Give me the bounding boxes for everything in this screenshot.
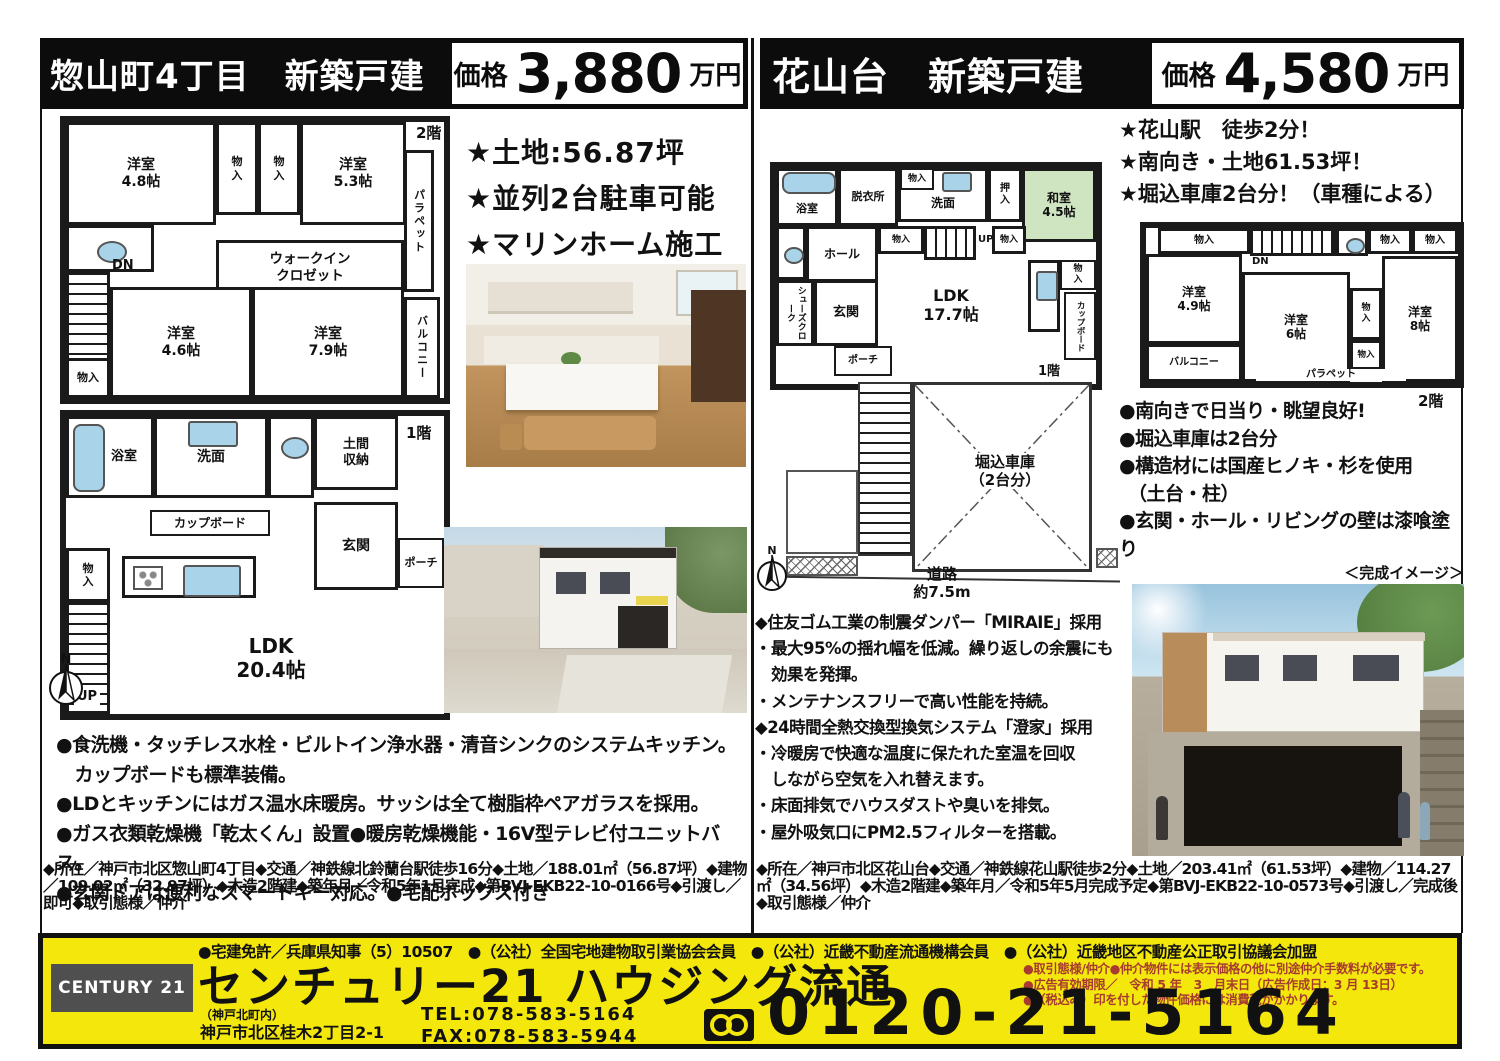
- room-label: 物 入: [1350, 288, 1382, 340]
- diamond-item: ◆24時間全熱交換型換気システム「澄家」採用: [755, 715, 1135, 741]
- garage-opening: [1184, 746, 1402, 846]
- floor-label-2f: 2階: [416, 124, 441, 142]
- panel-divider: [751, 38, 754, 933]
- left-floorplan-1f: 浴室 洗面 土間 収納 1階 カップボード 玄関 ポーチ 物 入 UP LDK …: [60, 410, 450, 720]
- site-hatch: [786, 556, 858, 576]
- room-label: LDK 20.4帖: [206, 634, 336, 682]
- room-label: 玄関: [814, 280, 878, 346]
- room-label: 玄関: [314, 502, 398, 590]
- room-label: ポーチ: [398, 538, 444, 588]
- house-window: [600, 572, 630, 594]
- left-feature-3: ★マリンホーム施工: [466, 222, 751, 268]
- left-price-value: 3,880: [516, 47, 682, 101]
- right-bullets: ●南向きで日当り・眺望良好! ●堀込車庫は2台分 ●構造材には国産ヒノキ・杉を使…: [1119, 398, 1464, 563]
- sink-icon: [1036, 271, 1058, 301]
- driveway: [557, 655, 732, 713]
- house-window: [556, 572, 586, 594]
- footer: ●宅建免許／兵庫県知事（5）10507 ●（公社）全国宅地建物取引業協会会員 ●…: [38, 933, 1462, 1049]
- room-label: 洋室 6帖: [1242, 272, 1350, 382]
- road-label: 道路 約7.5m: [882, 565, 1002, 601]
- room-label: 物 入: [1060, 260, 1096, 290]
- room-label: 洋室 5.3帖: [300, 122, 406, 225]
- room-label: 洋室 7.9帖: [252, 287, 404, 398]
- right-price-value: 4,580: [1224, 47, 1390, 101]
- house-window: [1283, 655, 1317, 681]
- left-property-title: 惣山町4丁目 新築戸建: [40, 38, 447, 109]
- garage-label: 堀込車庫 （2台分）: [965, 453, 1045, 489]
- left-floorplan-2f: 洋室 4.8帖 物 入 物 入 洋室 5.3帖 パラペット 2階 ウォークイン …: [60, 116, 450, 404]
- left-price-unit: 万円: [689, 55, 741, 92]
- flyer-page: 惣山町4丁目 新築戸建 価格 3,880 万円 洋室 4.8帖 物 入 物 入 …: [0, 0, 1500, 1061]
- dining-chair: [500, 424, 522, 450]
- parapet-label: パラペット: [1256, 369, 1406, 381]
- stairs-down-label: DN: [1252, 256, 1269, 268]
- balcony-rail: [1213, 633, 1425, 641]
- left-panel-edge: [40, 109, 42, 933]
- company-address: 神戸市北区桂木2丁目2-1: [200, 1023, 384, 1042]
- wood-cladding: [1163, 633, 1207, 733]
- room-label: LDK 17.7帖: [896, 286, 1006, 324]
- render-image-label: ＜完成イメージ＞: [1260, 564, 1464, 582]
- site-pad: [786, 470, 858, 554]
- diamond-item: ・最大95%の揺れ幅を低減。繰り返しの余震にも: [755, 636, 1135, 662]
- room-label: 物入: [66, 358, 110, 398]
- bullet-item: ●構造材には国産ヒノキ・杉を使用: [1119, 453, 1464, 481]
- room-label: シューズクローク: [776, 280, 814, 346]
- toilet-icon: [1346, 238, 1365, 254]
- person-silhouette: [1420, 802, 1430, 840]
- right-price-unit: 万円: [1397, 55, 1449, 92]
- right-features: ★花山駅 徒歩2分！ ★南向き・土地61.53坪！ ★堀込車庫2台分！（車種によ…: [1119, 114, 1464, 210]
- garage-site-plan: 堀込車庫 （2台分） 道路 約7.5m: [762, 378, 1120, 610]
- toilet-icon: [784, 247, 804, 264]
- room-label: バルコニー: [404, 297, 440, 398]
- house-window: [1353, 655, 1399, 681]
- room-label: バルコニー: [1146, 344, 1242, 382]
- left-property-details: ◆所在／神戸市北区惣山町4丁目◆交通／神鉄線北鈴蘭台駅徒歩16分◆土地／188.…: [43, 861, 749, 912]
- person-silhouette: [1398, 792, 1410, 838]
- stairs: [924, 226, 976, 260]
- bathtub-icon: [782, 172, 836, 194]
- room-label: ポーチ: [834, 346, 892, 376]
- sink-icon: [183, 565, 241, 597]
- compass-icon: N: [752, 542, 792, 598]
- stairs-down-label: DN: [112, 258, 134, 274]
- exterior-photo: [444, 527, 747, 713]
- tel-number: TEL:078-583-5164: [421, 1004, 636, 1026]
- room-label: ホール: [806, 226, 878, 282]
- kitchen-counter-plan: [122, 556, 256, 598]
- room-label: 物入: [1412, 228, 1458, 254]
- diamond-item: ◆住友ゴム工業の制震ダンパー「MIRAIE」採用: [755, 610, 1135, 636]
- sink-icon: [188, 421, 238, 447]
- diamond-item: ・屋外吸気口にPM2.5フィルターを搭載。: [755, 820, 1135, 846]
- banner: [636, 596, 668, 605]
- room-label: 物 入: [66, 548, 110, 602]
- room-label: 洋室 4.6帖: [110, 287, 252, 398]
- garage-stairs: [858, 382, 912, 556]
- kitchen-plan: [1028, 260, 1060, 332]
- bathtub-icon: [73, 424, 105, 492]
- toilet-room: [268, 416, 314, 498]
- kitchen-photo: [466, 264, 746, 467]
- century21-logo: CENTURY 21: [51, 964, 193, 1012]
- room-label: 押 入: [988, 168, 1022, 222]
- right-feature-2: ★南向き・土地61.53坪！: [1119, 146, 1464, 178]
- right-diamond-bullets: ◆住友ゴム工業の制震ダンパー「MIRAIE」採用 ・最大95%の揺れ幅を低減。繰…: [755, 610, 1135, 846]
- freedial-number: 0120-21-5164: [767, 982, 1346, 1044]
- right-floorplan-1f: 浴室 脱衣所 洗面 物入 押 入 和室 4.5帖 ホール 物入 UP 物入 シュ…: [770, 162, 1102, 390]
- right-property-details: ◆所在／神戸市北区花山台◆交通／神鉄線花山駅徒歩2分◆土地／203.41㎡（61…: [756, 861, 1464, 912]
- left-feature-1: ★土地:56.87坪: [466, 130, 751, 176]
- room-label: 洋室 4.9帖: [1146, 254, 1242, 344]
- bullet-item: ●南向きで日当り・眺望良好!: [1119, 398, 1464, 426]
- diamond-item: 効果を発揮。: [755, 662, 1135, 688]
- room-label: 物 入: [216, 122, 258, 215]
- dining-table: [524, 416, 656, 450]
- toilet-room: [776, 226, 806, 280]
- garage-outline: 堀込車庫 （2台分）: [912, 382, 1092, 572]
- house-roof: [540, 548, 676, 558]
- site-hatch: [1096, 548, 1118, 568]
- right-property-title: 花山台 新築戸建: [760, 38, 1147, 109]
- kitchen-island: [506, 364, 658, 410]
- bullet-item: ●食洗機・タッチレス水栓・ビルトイン浄水器・清音シンクのシステムキッチン。: [56, 731, 750, 761]
- stairs: [1250, 228, 1336, 256]
- kitchen-tall-cabinet: [691, 290, 746, 402]
- right-price-label: 価格: [1162, 54, 1216, 93]
- right-price-box: 価格 4,580 万円: [1147, 38, 1464, 109]
- render-photo: [1132, 584, 1464, 856]
- house-garage: [618, 606, 668, 648]
- bullet-item: （土台・柱）: [1119, 481, 1464, 509]
- left-price-box: 価格 3,880 万円: [447, 38, 748, 109]
- room-label: 脱衣所: [838, 168, 898, 226]
- room-label: カップボード: [1064, 292, 1096, 360]
- room-label: 物入: [878, 226, 924, 254]
- left-feature-2: ★並列2台駐車可能: [466, 176, 751, 222]
- toilet-icon: [281, 437, 309, 459]
- room-label: 物入: [1158, 228, 1250, 254]
- right-feature-3: ★堀込車庫2台分！（車種による）: [1119, 178, 1464, 210]
- toilet-room: [66, 225, 154, 272]
- bullet-item: カップボードも標準装備。: [56, 761, 750, 791]
- branch-note: （神戸北町内）: [200, 1008, 284, 1022]
- left-price-label: 価格: [454, 54, 508, 93]
- bullet-item: ●LDとキッチンにはガス温水床暖房。サッシは全て樹脂枠ペアガラスを採用。: [56, 790, 750, 820]
- toilet-room: [1336, 228, 1368, 256]
- freedial-icon: [703, 1008, 755, 1042]
- room-label: 洋室 4.8帖: [66, 122, 216, 225]
- room-label: 土間 収納: [314, 416, 398, 490]
- left-features: ★土地:56.87坪 ★並列2台駐車可能 ★マリンホーム施工: [466, 130, 751, 268]
- fax-number: FAX:078-583-5944: [421, 1026, 638, 1048]
- house-window: [1225, 655, 1259, 681]
- license-memberships: ●宅建免許／兵庫県知事（5）10507 ●（公社）全国宅地建物取引業協会会員 ●…: [198, 943, 1453, 962]
- room-label: 物入: [992, 226, 1026, 254]
- floor-label-1f: 1階: [406, 424, 431, 442]
- right-feature-1: ★花山駅 徒歩2分！: [1119, 114, 1464, 146]
- diamond-item: ・床面排気でハウスダストや臭いを排気。: [755, 793, 1135, 819]
- sink-icon: [942, 172, 972, 192]
- room-label: 物入: [1350, 340, 1382, 370]
- kitchen-cabinets: [488, 282, 633, 314]
- bullet-item: ●堀込車庫は2台分: [1119, 426, 1464, 454]
- diamond-item: ・冷暖房で快適な温度に保たれた室温を回収: [755, 741, 1135, 767]
- house-body: [539, 547, 677, 649]
- stove-icon: [133, 566, 163, 590]
- diamond-item: しながら空気を入れ替えます。: [755, 767, 1135, 793]
- diamond-item: ・メンテナンスフリーで高い性能を持続。: [755, 689, 1135, 715]
- trees: [665, 527, 747, 613]
- room-label: パラペット: [404, 150, 434, 292]
- bullet-item: ●玄関・ホール・リビングの壁は漆喰塗り: [1119, 508, 1464, 563]
- person-silhouette: [1156, 796, 1168, 840]
- render-house: [1162, 632, 1424, 732]
- compass-icon: N: [44, 650, 88, 712]
- room-label: 和室 4.5帖: [1022, 168, 1096, 242]
- right-floorplan-2f: 物入 DN 物入 物入 洋室 4.9帖 洋室 6帖 物 入 洋室 8帖 バルコニ…: [1140, 222, 1464, 388]
- neighbor-houses: [444, 545, 544, 617]
- room-label: 物入: [900, 168, 934, 190]
- room-label: カップボード: [150, 510, 270, 536]
- room-label: 物 入: [258, 122, 300, 215]
- room-label: 物入: [1368, 228, 1412, 254]
- room-label: 洋室 8帖: [1382, 256, 1458, 382]
